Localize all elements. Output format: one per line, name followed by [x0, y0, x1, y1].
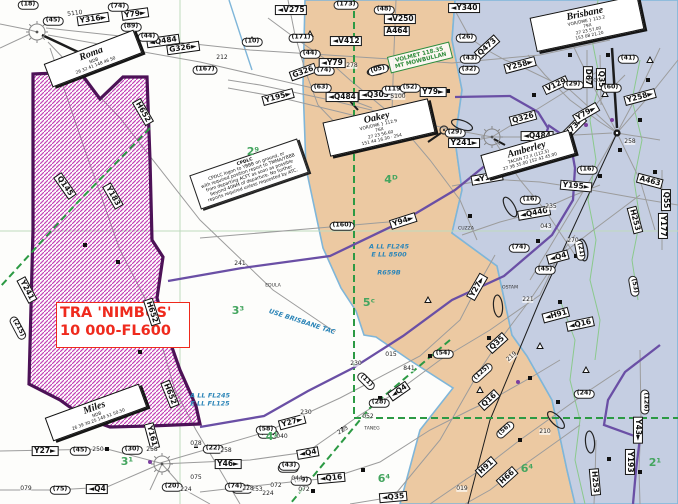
waypoint-square-icon: [468, 214, 472, 218]
distance-pill-label: (28): [369, 399, 390, 408]
bearing-distance-label: 224: [180, 487, 191, 493]
bearing-distance-label: 044: [291, 476, 302, 482]
waypoint-square-icon: [598, 174, 602, 178]
distance-pill-label: (41): [618, 55, 639, 64]
waypoint-square-icon: [487, 336, 491, 340]
purple-dot-icon: [584, 123, 588, 127]
airspace-level-label: A LL FL245: [369, 244, 409, 251]
grid-sector-label: 4¹: [266, 431, 278, 443]
distance-pill-label: (173): [334, 1, 359, 10]
waypoint-square-icon: [138, 350, 142, 354]
airway-designator-label: Y43►: [633, 417, 643, 444]
vor-point-center-icon: [616, 132, 618, 134]
distance-pill-label: (26): [456, 34, 477, 43]
bearing-distance-label: 230: [300, 410, 311, 416]
bearing-distance-label: 043: [540, 224, 551, 230]
airway-designator-label: Y193: [625, 449, 635, 475]
airspace-level-label: A LL FL245: [190, 393, 230, 400]
waypoint-square-icon: [518, 438, 522, 442]
tra-nimbus-area: [29, 72, 200, 427]
distance-pill-label: (45): [70, 447, 91, 456]
bearing-distance-label: 019: [456, 486, 467, 492]
bearing-distance-label: 212: [216, 55, 227, 61]
bearing-distance-label: 278: [346, 63, 357, 69]
distance-pill-label: (75): [50, 486, 71, 495]
bearing-distance-label: 075: [190, 475, 201, 481]
distance-pill-label: (10): [242, 38, 263, 47]
distance-pill-label: (32): [459, 66, 480, 75]
airway-designator-label: ◄V250: [384, 14, 416, 24]
distance-pill-label: (29): [563, 81, 584, 90]
bearing-distance-label: 270: [567, 238, 578, 244]
waypoint-square-icon: [528, 376, 532, 380]
waypoint-square-icon: [638, 470, 642, 474]
airspace-level-label: E LL 8500: [371, 252, 406, 259]
waypoint-square-icon: [558, 300, 562, 304]
vor-compass-rose-icon: [151, 453, 173, 475]
cta-step-line: [229, 0, 252, 70]
waypoint-square-icon: [83, 243, 87, 247]
airway-designator-label: A464: [384, 26, 410, 36]
distance-pill-label: (29): [445, 129, 466, 138]
bearing-distance-label: 258: [624, 139, 635, 145]
waypoint-square-icon: [536, 239, 540, 243]
grid-sector-label: 5ᶜ: [363, 297, 375, 309]
airway-designator-label: D67: [583, 66, 593, 88]
bearing-distance-label: 258: [220, 448, 231, 454]
waypoint-name-label: TANEG: [364, 428, 380, 433]
distance-pill-label: (48): [374, 6, 395, 15]
bearing-distance-label: 072: [270, 483, 281, 489]
bearing-distance-label: 072: [298, 487, 309, 493]
grid-sector-label: 6⁴: [521, 463, 533, 475]
distance-pill-label: (44): [300, 50, 321, 59]
waypoint-square-icon: [606, 53, 610, 57]
tra-levels: 10 000-FL600: [60, 322, 186, 340]
distance-pill-label: (45): [43, 17, 64, 26]
distance-pill-label: (160): [330, 222, 355, 231]
waypoint-square-icon: [105, 447, 109, 451]
airway-line: [0, 24, 37, 32]
distance-pill-label: (126): [641, 390, 650, 415]
bearing-distance-label: 078: [190, 441, 201, 447]
airway-designator-label: ◄Q4: [86, 484, 108, 494]
bearing-distance-label: 841: [403, 366, 414, 372]
distance-pill-label: (54): [433, 350, 454, 359]
tra-nimbus-label: TRA 'NIMBUS' 10 000-FL600: [56, 302, 190, 348]
distance-pill-label: (60): [601, 84, 622, 93]
waypoint-square-icon: [428, 354, 432, 358]
bearing-distance-label: 235: [545, 204, 556, 210]
airway-designator-label: ◄V275: [275, 5, 307, 15]
bearing-distance-label: 221: [522, 297, 533, 303]
distance-pill-label: (167): [193, 66, 218, 75]
distance-pill-label: (45): [535, 266, 556, 275]
grid-sector-label: 2⁹: [247, 146, 259, 158]
airway-designator-label: Y177: [658, 213, 668, 239]
airway-designator-label: Q55: [661, 189, 671, 211]
waypoint-name-label: CUZZA: [458, 228, 474, 233]
bearing-distance-label: 258: [146, 447, 157, 453]
waypoint-name-label: EDULA: [265, 285, 281, 290]
waypoint-square-icon: [311, 489, 315, 493]
purple-dot-icon: [610, 118, 614, 122]
tra-name: TRA 'NIMBUS': [60, 304, 186, 322]
distance-pill-label: (16): [520, 196, 541, 205]
waypoint-square-icon: [618, 148, 622, 152]
grid-sector-label: 4ᴰ: [384, 174, 397, 186]
distance-pill-label: (171): [289, 34, 314, 43]
enroute-chart-canvas[interactable]: TRA 'NIMBUS' 10 000-FL600 VOLMET 118.35 …: [0, 0, 678, 504]
airway-designator-label: Y27►: [32, 446, 59, 456]
purple-dot-icon: [148, 460, 152, 464]
airway-designator-label: Y241►: [448, 138, 480, 148]
airway-designator-label: ◄V412: [330, 36, 362, 46]
bearing-distance-label: 015: [385, 352, 396, 358]
waypoint-square-icon: [361, 468, 365, 472]
distance-pill-label: (18): [18, 1, 39, 10]
bearing-distance-label: 250: [92, 447, 103, 453]
waypoint-square-icon: [646, 78, 650, 82]
bearing-distance-label: 230: [350, 361, 361, 367]
bearing-distance-label: 079: [20, 486, 31, 492]
distance-pill-label: (74): [314, 67, 335, 76]
distance-pill-label: (74): [509, 244, 530, 253]
airway-designator-label: ◄Q484: [326, 92, 359, 102]
waypoint-square-icon: [607, 457, 611, 461]
distance-pill-label: (16): [577, 166, 598, 175]
airway-designator-label: Y46►: [215, 459, 242, 469]
grid-sector-label: 3³: [232, 305, 244, 317]
airway-line: [0, 34, 30, 48]
distance-pill-label: (44): [138, 33, 159, 42]
waypoint-square-icon: [653, 170, 657, 174]
airway-designator-label: ◄Y340: [448, 3, 480, 13]
distance-pill-label: (30): [122, 446, 143, 455]
grid-sector-label: 6⁴: [378, 473, 390, 485]
waypoint-square-icon: [446, 89, 450, 93]
grid-sector-label: 3¹: [121, 456, 133, 468]
bearing-distance-label: 5100: [390, 94, 405, 100]
distance-pill-label: (43): [279, 462, 300, 471]
waypoint-square-icon: [568, 53, 572, 57]
distance-pill-label: (52): [400, 84, 421, 93]
bearing-distance-label: 224: [262, 491, 273, 497]
distance-pill-label: (74): [108, 3, 129, 12]
waypoint-square-icon: [532, 93, 536, 97]
distance-pill-label: (24): [574, 390, 595, 399]
distance-pill-label: (63): [311, 84, 332, 93]
bearing-distance-label: 241: [234, 261, 245, 267]
airspace-level-label: E LL FL125: [190, 401, 229, 408]
bearing-distance-label: 228: [242, 486, 253, 492]
vor-compass-rose-icon: [481, 126, 503, 148]
bearing-distance-label: 052: [362, 414, 373, 420]
waypoint-square-icon: [116, 260, 120, 264]
purple-dot-icon: [516, 380, 520, 384]
waypoint-square-icon: [556, 400, 560, 404]
waypoint-name-label: OSTAM: [502, 287, 518, 292]
airway-designator-label: Y79►: [420, 87, 447, 97]
bearing-distance-label: 210: [539, 429, 550, 435]
waypoint-name-label: DAIGO: [585, 80, 600, 85]
airspace-level-label: R659B: [377, 270, 401, 277]
distance-pill-label: (20): [162, 483, 183, 492]
waypoint-square-icon: [638, 118, 642, 122]
grid-sector-label: 2¹: [649, 457, 661, 469]
distance-pill-label: (43): [460, 55, 481, 64]
